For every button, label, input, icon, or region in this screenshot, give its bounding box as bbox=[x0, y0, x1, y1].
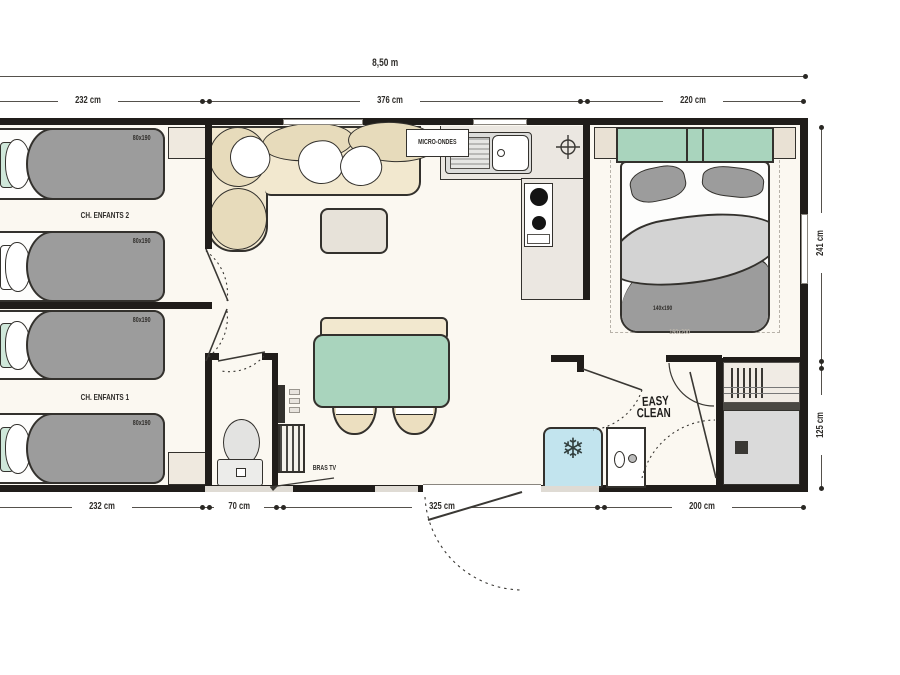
chair-back bbox=[336, 407, 373, 415]
double-bed-footprint-label: 160x200 bbox=[650, 329, 710, 336]
dim-dot bbox=[801, 505, 806, 510]
floor-plan: 8,50 m 232 cm 376 cm 220 cm 241 cm 125 c… bbox=[0, 0, 900, 675]
dim-dot bbox=[578, 99, 583, 104]
window bbox=[205, 486, 293, 492]
dim-dot bbox=[207, 505, 212, 510]
chair-back bbox=[396, 407, 433, 415]
dim-right-241: 241 cm bbox=[814, 213, 828, 273]
dim-dot bbox=[819, 359, 824, 364]
wall-wc-top-stub bbox=[205, 353, 219, 360]
bed-duvet: 80x190 bbox=[26, 128, 165, 200]
stove-burner bbox=[532, 216, 546, 230]
bed-duvet: 80x190 bbox=[26, 413, 165, 484]
dim-bottom-325: 325 cm bbox=[412, 500, 472, 514]
coffee-table bbox=[320, 208, 388, 254]
wall-bathroom-right bbox=[716, 358, 723, 485]
bed-pillow bbox=[627, 162, 689, 207]
dim-dot bbox=[801, 99, 806, 104]
dim-dot bbox=[602, 505, 607, 510]
wall-master-jog-stub bbox=[577, 355, 584, 372]
basin-faucet bbox=[628, 454, 637, 463]
wall-bathroom-top bbox=[666, 355, 722, 362]
bed-single-1: 80x190 bbox=[0, 128, 165, 200]
dining-table bbox=[313, 334, 450, 408]
dim-overall-label: 8,50 m bbox=[345, 57, 425, 69]
basin bbox=[614, 451, 625, 468]
double-bed: 140x190 bbox=[620, 161, 770, 333]
dim-dot bbox=[819, 366, 824, 371]
shower bbox=[723, 410, 800, 485]
dim-dot bbox=[200, 99, 205, 104]
easy-clean-line2: CLEAN bbox=[637, 406, 671, 419]
headboard bbox=[616, 127, 774, 163]
bed-pillow bbox=[701, 164, 766, 200]
window bbox=[473, 119, 527, 125]
dim-dot bbox=[819, 125, 824, 130]
dim-bottom-70: 70 cm bbox=[214, 500, 264, 514]
bed-single-3: 80x190 bbox=[0, 310, 165, 380]
easy-clean-logo: EASY CLEAN bbox=[637, 393, 683, 420]
toilet-tank bbox=[217, 459, 263, 486]
dim-dot bbox=[585, 99, 590, 104]
kids-room-1-label: CH. ENFANTS 1 bbox=[38, 392, 172, 402]
stove-control bbox=[527, 234, 550, 244]
bed-duvet: 80x190 bbox=[26, 231, 165, 302]
stove-burner bbox=[530, 188, 548, 206]
wardrobe bbox=[723, 362, 800, 403]
bed-single-2: 80x190 bbox=[0, 231, 165, 302]
shelf-item bbox=[289, 407, 300, 413]
wall-kitchen-master bbox=[583, 125, 590, 300]
window bbox=[283, 119, 363, 125]
flush-button bbox=[236, 468, 246, 477]
kids-room-2-label: CH. ENFANTS 2 bbox=[38, 210, 172, 220]
headboard-divider bbox=[686, 129, 688, 161]
dim-right-125: 125 cm bbox=[814, 395, 828, 455]
dim-overall-line bbox=[0, 76, 806, 77]
fridge: ❄ bbox=[543, 427, 603, 488]
sink-faucet bbox=[497, 149, 505, 157]
tv-bracket-label: BRAS TV bbox=[301, 465, 347, 472]
shelf bbox=[168, 452, 206, 485]
shelf-edge bbox=[724, 387, 799, 388]
headboard-divider bbox=[702, 129, 704, 161]
dim-dot bbox=[274, 505, 279, 510]
nightstand bbox=[594, 127, 618, 159]
washbasin-unit bbox=[606, 427, 646, 488]
snowflake-icon: ❄ bbox=[545, 435, 601, 463]
shower-drain bbox=[735, 441, 748, 454]
window bbox=[801, 214, 808, 284]
dim-bottom-232: 232 cm bbox=[72, 500, 132, 514]
wall-wc-left bbox=[205, 353, 212, 485]
window bbox=[541, 486, 599, 492]
shelf-item bbox=[289, 389, 300, 395]
nightstand bbox=[772, 127, 796, 159]
dim-top-220: 220 cm bbox=[663, 94, 723, 108]
dim-dot bbox=[207, 99, 212, 104]
tv-bracket bbox=[278, 385, 285, 423]
dim-top-376: 376 cm bbox=[360, 94, 420, 108]
wall-kids-divider bbox=[0, 302, 212, 309]
shelf-item bbox=[289, 398, 300, 404]
wall-wc-right bbox=[272, 358, 278, 485]
dim-dot bbox=[595, 505, 600, 510]
wall-kids-vertical-top bbox=[205, 125, 212, 249]
entrance-door-opening bbox=[423, 484, 541, 493]
shelf bbox=[168, 127, 206, 159]
window bbox=[375, 486, 418, 492]
dim-bottom-200: 200 cm bbox=[672, 500, 732, 514]
dim-dot bbox=[281, 505, 286, 510]
microwave-label: MICRO-ONDES bbox=[406, 129, 469, 157]
wall-wardrobe-top bbox=[723, 357, 800, 362]
dim-top-232: 232 cm bbox=[58, 94, 118, 108]
dim-dot bbox=[200, 505, 205, 510]
shelf-edge bbox=[724, 393, 799, 394]
dim-dot bbox=[803, 74, 808, 79]
bed-duvet: 80x190 bbox=[26, 310, 165, 380]
dim-dot bbox=[819, 486, 824, 491]
wall-wardrobe-mid bbox=[723, 403, 800, 410]
double-bed-size: 140x190 bbox=[650, 305, 675, 312]
bed-single-4: 80x190 bbox=[0, 413, 165, 484]
